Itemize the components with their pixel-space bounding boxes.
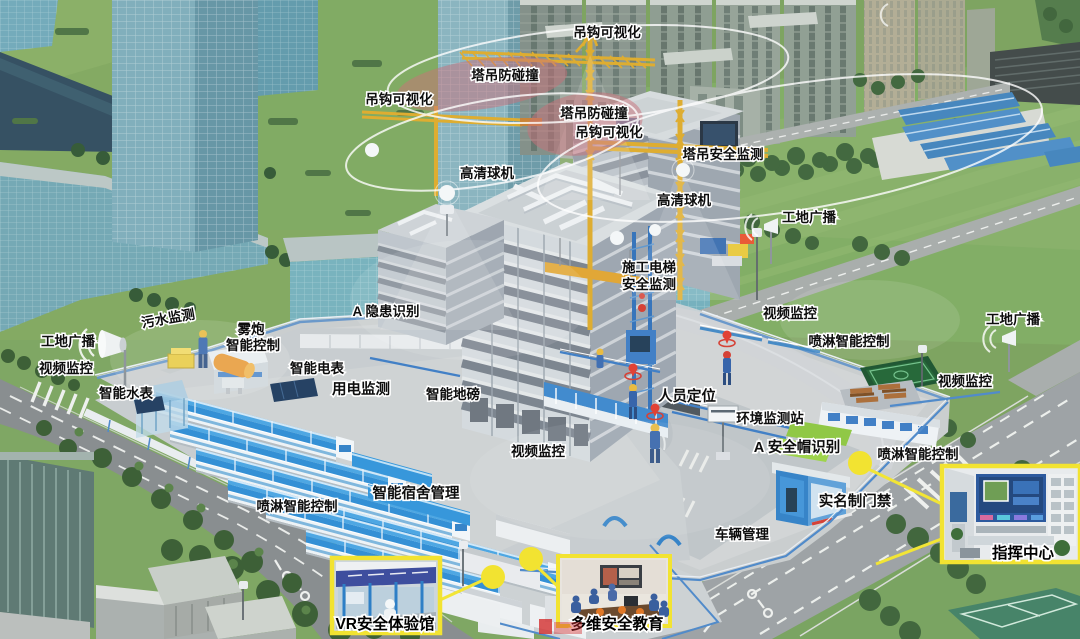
- svg-text:高清球机: 高清球机: [657, 192, 711, 208]
- svg-text:工地广播: 工地广播: [41, 333, 95, 349]
- svg-text:工地广播: 工地广播: [986, 311, 1040, 327]
- svg-text:吊钩可视化: 吊钩可视化: [575, 124, 643, 140]
- svg-text:多维安全教育: 多维安全教育: [570, 614, 663, 633]
- svg-text:塔吊安全监测: 塔吊安全监测: [683, 146, 764, 162]
- svg-text:智能电表: 智能电表: [290, 360, 344, 376]
- svg-text:视频监控: 视频监控: [763, 305, 817, 321]
- svg-text:工地广播: 工地广播: [782, 209, 836, 225]
- svg-text:安全监测: 安全监测: [622, 276, 676, 292]
- svg-text:喷淋智能控制: 喷淋智能控制: [809, 333, 890, 349]
- svg-text:智能宿舍管理: 智能宿舍管理: [373, 484, 460, 502]
- svg-text:雾炮: 雾炮: [237, 321, 265, 337]
- svg-text:A 隐患识别: A 隐患识别: [353, 303, 420, 319]
- svg-text:吊钩可视化: 吊钩可视化: [573, 24, 641, 40]
- svg-text:视频监控: 视频监控: [938, 373, 992, 389]
- svg-text:环境监测站: 环境监测站: [736, 410, 804, 426]
- svg-text:A 安全帽识别: A 安全帽识别: [754, 438, 840, 456]
- svg-text:人员定位: 人员定位: [658, 387, 716, 405]
- svg-text:用电监测: 用电监测: [332, 380, 390, 398]
- svg-text:指挥中心: 指挥中心: [992, 543, 1055, 562]
- svg-text:智能水表: 智能水表: [99, 385, 153, 401]
- svg-text:吊钩可视化: 吊钩可视化: [365, 91, 433, 107]
- svg-text:智能控制: 智能控制: [226, 337, 280, 353]
- svg-text:喷淋智能控制: 喷淋智能控制: [878, 446, 959, 462]
- svg-text:塔吊防碰撞: 塔吊防碰撞: [560, 105, 628, 121]
- svg-text:车辆管理: 车辆管理: [715, 526, 769, 542]
- svg-text:实名制门禁: 实名制门禁: [819, 492, 892, 510]
- svg-text:塔吊防碰撞: 塔吊防碰撞: [471, 67, 539, 83]
- svg-text:喷淋智能控制: 喷淋智能控制: [257, 498, 338, 514]
- svg-text:智能地磅: 智能地磅: [426, 386, 480, 402]
- svg-text:施工电梯: 施工电梯: [622, 259, 676, 275]
- svg-text:VR安全体验馆: VR安全体验馆: [335, 614, 434, 633]
- svg-text:高清球机: 高清球机: [460, 165, 514, 181]
- svg-text:视频监控: 视频监控: [39, 360, 93, 376]
- svg-text:视频监控: 视频监控: [511, 443, 565, 459]
